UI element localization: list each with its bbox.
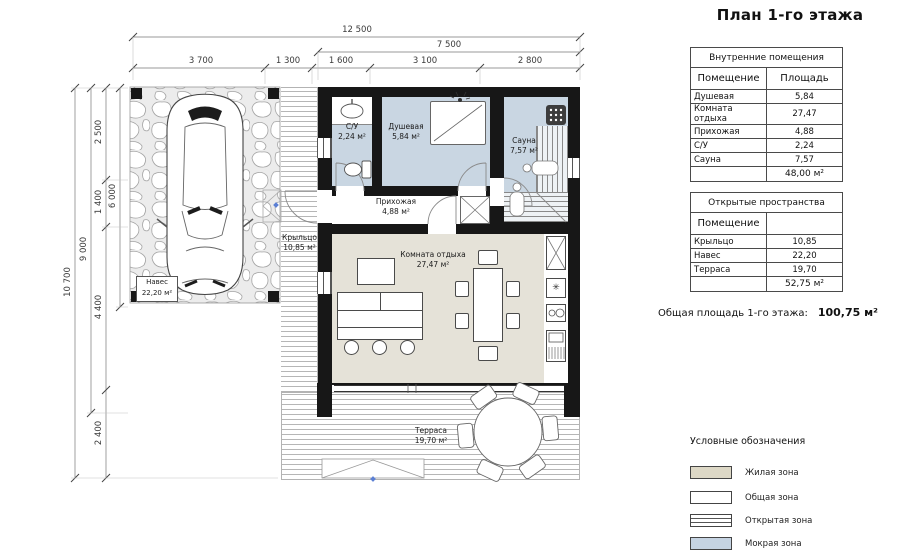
pouf-3 bbox=[400, 340, 415, 355]
dining-chair bbox=[506, 313, 520, 329]
table-total-row: 48,00 м² bbox=[691, 167, 843, 182]
dim-seg-3100: 3 100 bbox=[395, 56, 455, 66]
legend-label-living: Жилая зона bbox=[745, 468, 799, 478]
window-west-2 bbox=[317, 272, 332, 294]
kitchen-vent-shaft bbox=[546, 236, 566, 270]
legend-label-open: Открытая зона bbox=[745, 516, 812, 526]
dining-chair bbox=[478, 346, 498, 361]
total-area-label: Общая площадь 1-го этажа: bbox=[658, 308, 808, 319]
kitchen-sink bbox=[546, 304, 566, 322]
table-row: Комната отдыха27,47 bbox=[691, 104, 843, 125]
label-lounge: Комната отдыха27,47 м² bbox=[373, 250, 493, 270]
legend-swatch-open bbox=[690, 514, 732, 527]
label-terrace: Терраса19,70 м² bbox=[401, 426, 461, 446]
dim-total-width: 12 500 bbox=[327, 25, 387, 35]
door-gap-sauna bbox=[490, 178, 504, 206]
dim-seg-3700: 3 700 bbox=[171, 56, 231, 66]
table-row: Душевая5,84 bbox=[691, 90, 843, 104]
table-row: Прихожая4,88 bbox=[691, 125, 843, 139]
label-carport: Навес22,20 м² bbox=[136, 276, 178, 302]
snowflake-icon: ✳ bbox=[552, 283, 560, 293]
interior-rooms-table: Внутренние помещения Помещение Площадь Д… bbox=[690, 47, 843, 182]
porch-step-wedge bbox=[263, 190, 281, 222]
fridge: ✳ bbox=[546, 278, 566, 298]
dim-total-height: 10 700 bbox=[63, 252, 73, 312]
col-header-area bbox=[767, 213, 843, 235]
pouf-1 bbox=[344, 340, 359, 355]
label-sauna: Сауна7,57 м² bbox=[500, 136, 548, 156]
legend-swatch-wet bbox=[690, 537, 732, 550]
legend-label-common: Общая зона bbox=[745, 493, 798, 503]
label-porch: Крыльцо10,85 м² bbox=[272, 233, 327, 253]
col-header-area: Площадь bbox=[767, 68, 843, 90]
dim-house-height: 9 000 bbox=[79, 219, 89, 279]
dim-seg-4400: 4 400 bbox=[94, 277, 104, 337]
table-row: Сауна7,57 bbox=[691, 153, 843, 167]
table-row: Навес22,20 bbox=[691, 249, 843, 263]
sauna-bench-bottom bbox=[504, 192, 568, 222]
open-spaces-table: Открытые пространства Помещение Крыльцо1… bbox=[690, 192, 843, 292]
floor-plan-sheet: ✳ bbox=[0, 0, 920, 560]
dim-seg-2400: 2 400 bbox=[94, 403, 104, 463]
table-row: Крыльцо10,85 bbox=[691, 235, 843, 249]
dim-seg-2800: 2 800 bbox=[500, 56, 560, 66]
shower-tray bbox=[430, 101, 486, 145]
wc-sink-counter bbox=[332, 97, 372, 125]
open-table-title: Открытые пространства bbox=[691, 193, 843, 213]
legend-title: Условные обозначения bbox=[690, 436, 805, 447]
legend-swatch-common bbox=[690, 491, 732, 504]
entrance-opening bbox=[317, 190, 332, 223]
dining-chair bbox=[455, 281, 469, 297]
dim-seg-2500: 2 500 bbox=[94, 102, 104, 162]
legend-swatch-living bbox=[690, 466, 732, 479]
interior-table-title: Внутренние помещения bbox=[691, 48, 843, 68]
label-hall: Прихожая4,88 м² bbox=[356, 197, 436, 217]
car bbox=[157, 94, 253, 294]
south-glazing bbox=[334, 385, 564, 392]
label-shower: Душевая5,84 м² bbox=[378, 122, 434, 142]
total-area-value: 100,75 м² bbox=[818, 306, 878, 319]
dining-table bbox=[473, 268, 503, 342]
dim-seg-1300: 1 300 bbox=[258, 56, 318, 66]
sauna-heater bbox=[546, 105, 566, 125]
label-wc: С/У2,24 м² bbox=[330, 122, 374, 142]
window-east-sauna bbox=[566, 158, 580, 178]
pouf-2 bbox=[372, 340, 387, 355]
col-header-room: Помещение bbox=[691, 213, 767, 235]
dim-seg-1400: 1 400 bbox=[94, 172, 104, 232]
kitchen-stove bbox=[546, 330, 566, 362]
door-gap-wc bbox=[336, 186, 364, 196]
dim-house-width: 7 500 bbox=[419, 40, 479, 50]
door-gap-lounge bbox=[428, 224, 456, 234]
sofa bbox=[337, 292, 423, 340]
dim-carport-depth: 6 000 bbox=[108, 166, 118, 226]
dim-seg-1600: 1 600 bbox=[311, 56, 371, 66]
page-title: План 1-го этажа bbox=[690, 6, 890, 24]
dining-chair bbox=[506, 281, 520, 297]
total-area-line: Общая площадь 1-го этажа:100,75 м² bbox=[658, 306, 878, 319]
dining-chair bbox=[455, 313, 469, 329]
door-gap-shower bbox=[458, 186, 486, 196]
carport-paving bbox=[130, 87, 280, 303]
table-row: С/У2,24 bbox=[691, 139, 843, 153]
legend-label-wet: Мокрая зона bbox=[745, 539, 802, 549]
table-total-row: 52,75 м² bbox=[691, 277, 843, 292]
hall-closet bbox=[460, 196, 490, 224]
col-header-room: Помещение bbox=[691, 68, 767, 90]
table-row: Терраса19,70 bbox=[691, 263, 843, 277]
